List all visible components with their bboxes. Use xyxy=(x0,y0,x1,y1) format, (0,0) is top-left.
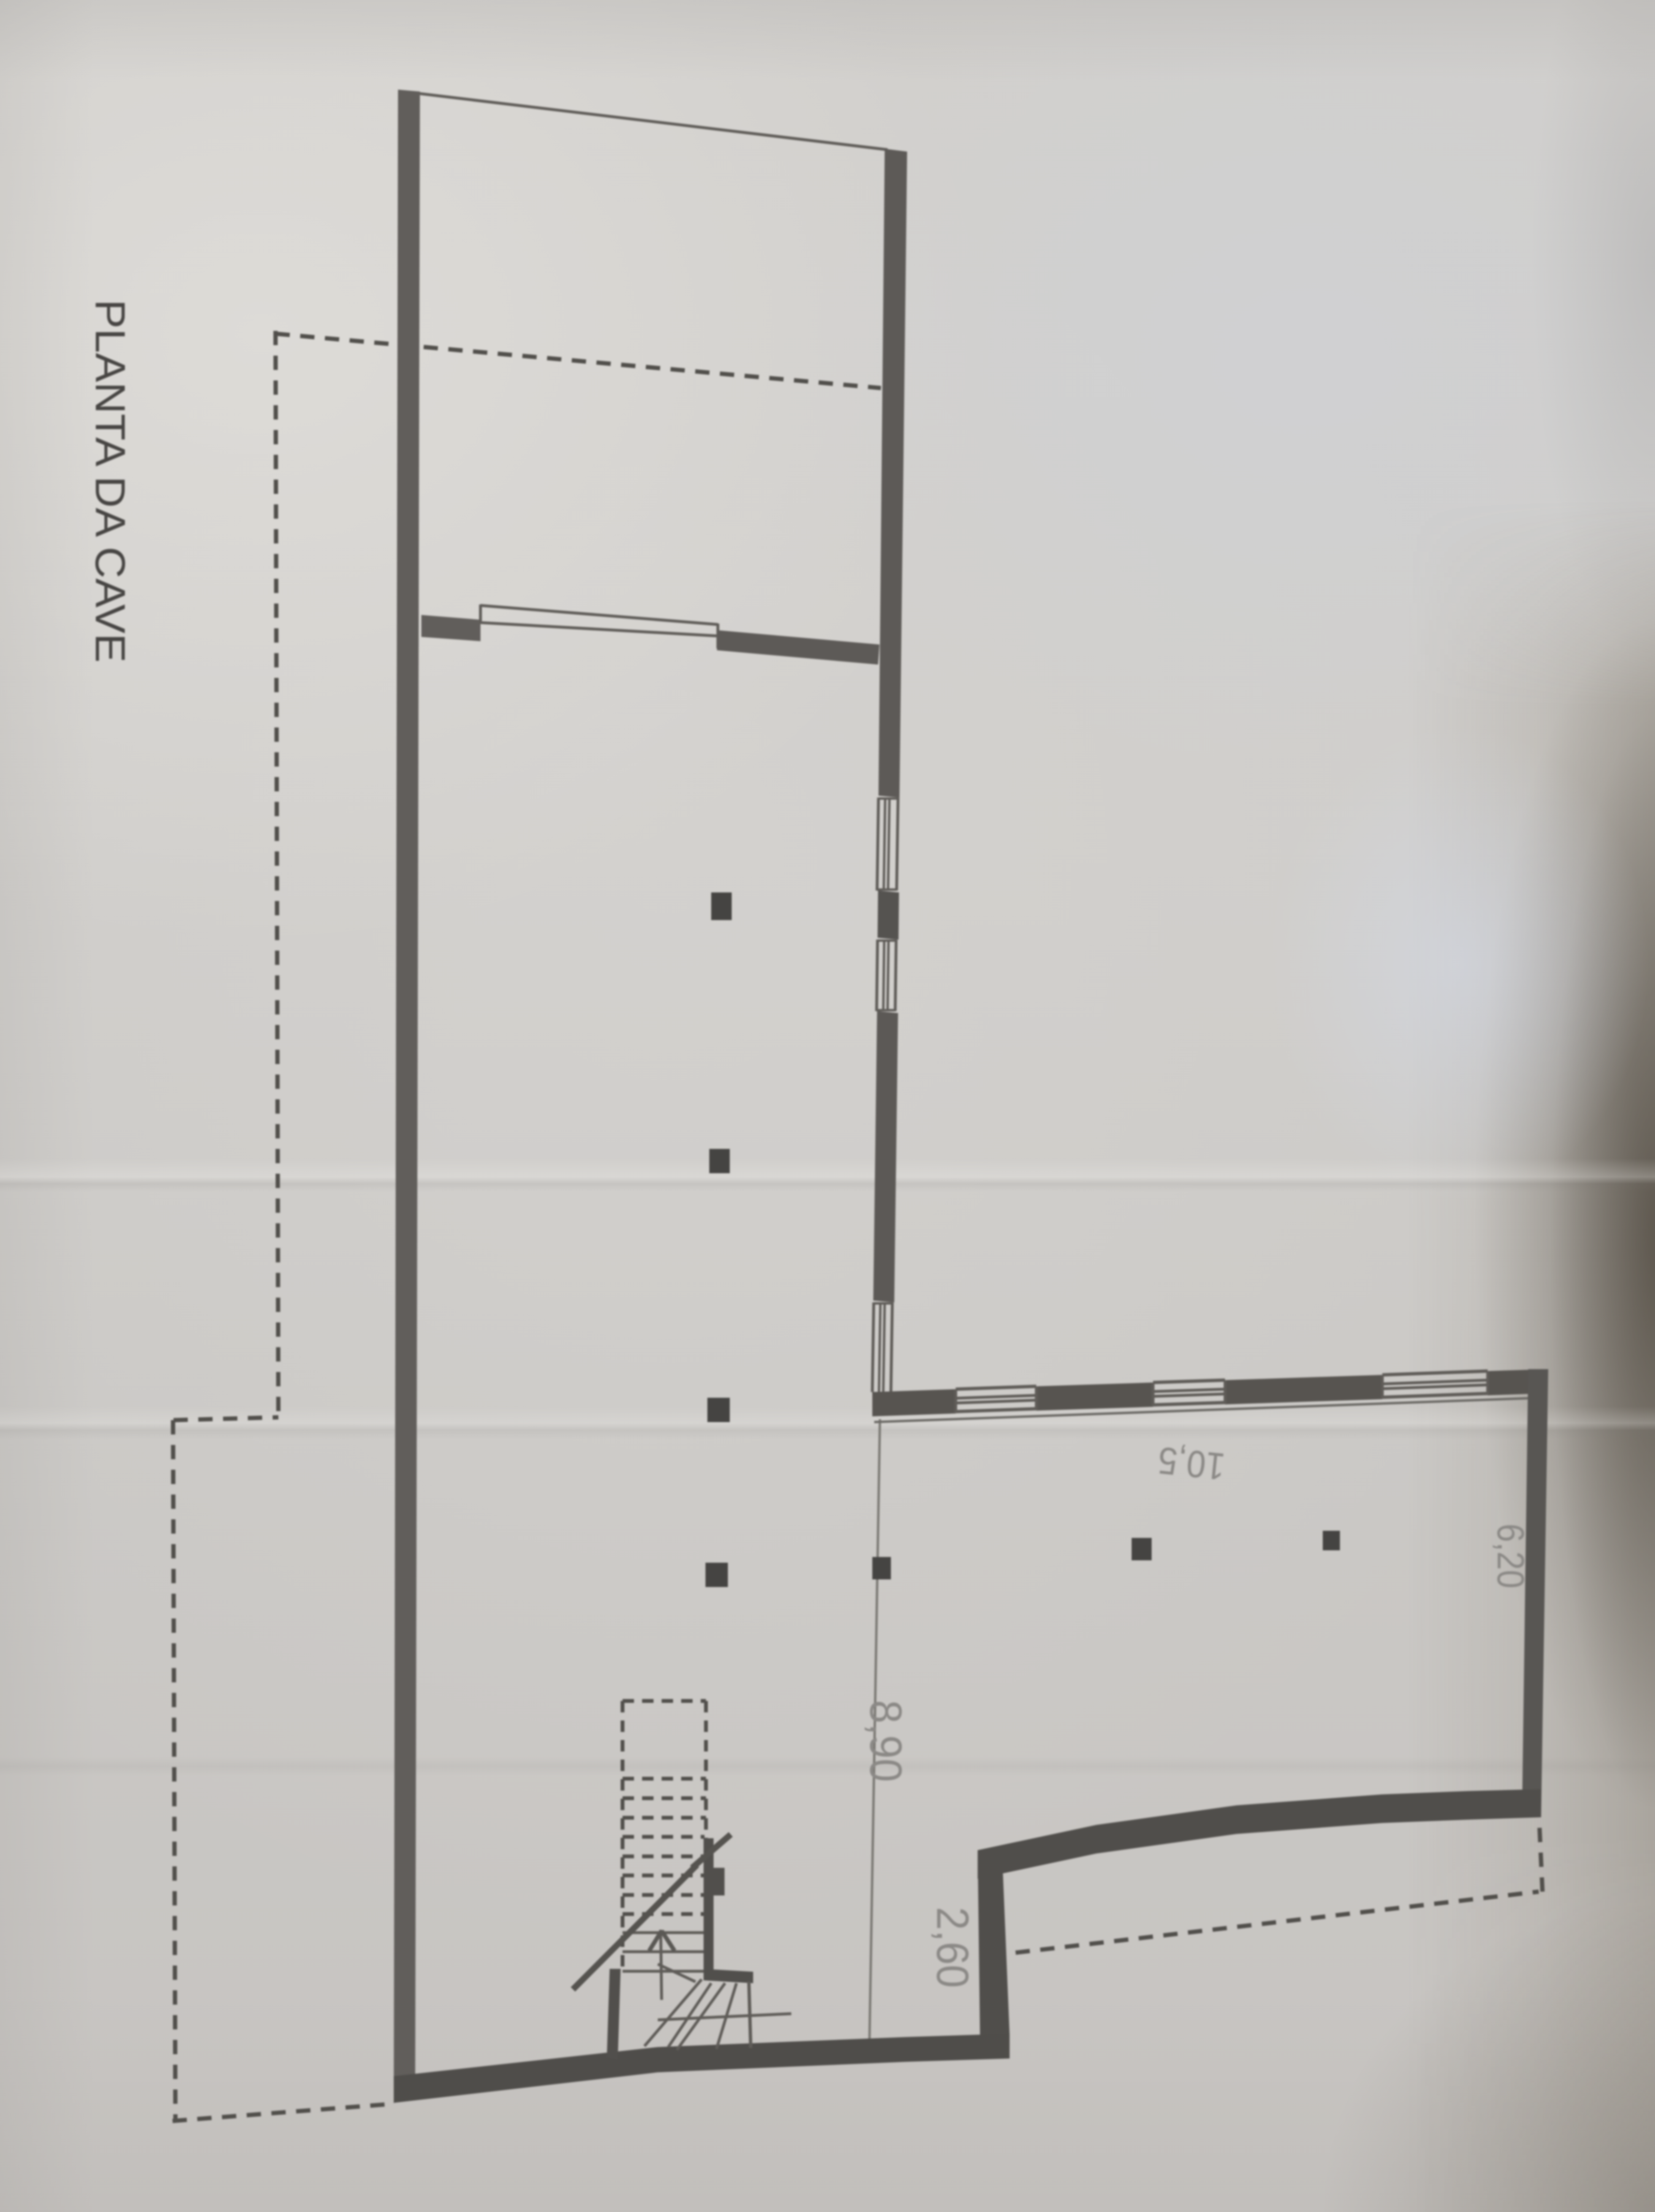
svg-text:10,5: 10,5 xyxy=(1156,1439,1227,1488)
svg-text:PLANTA DA CAVE: PLANTA DA CAVE xyxy=(87,299,134,663)
svg-text:8,90: 8,90 xyxy=(860,1700,911,1782)
svg-text:2,60: 2,60 xyxy=(927,1907,978,1988)
svg-text:6,20: 6,20 xyxy=(1490,1524,1532,1588)
